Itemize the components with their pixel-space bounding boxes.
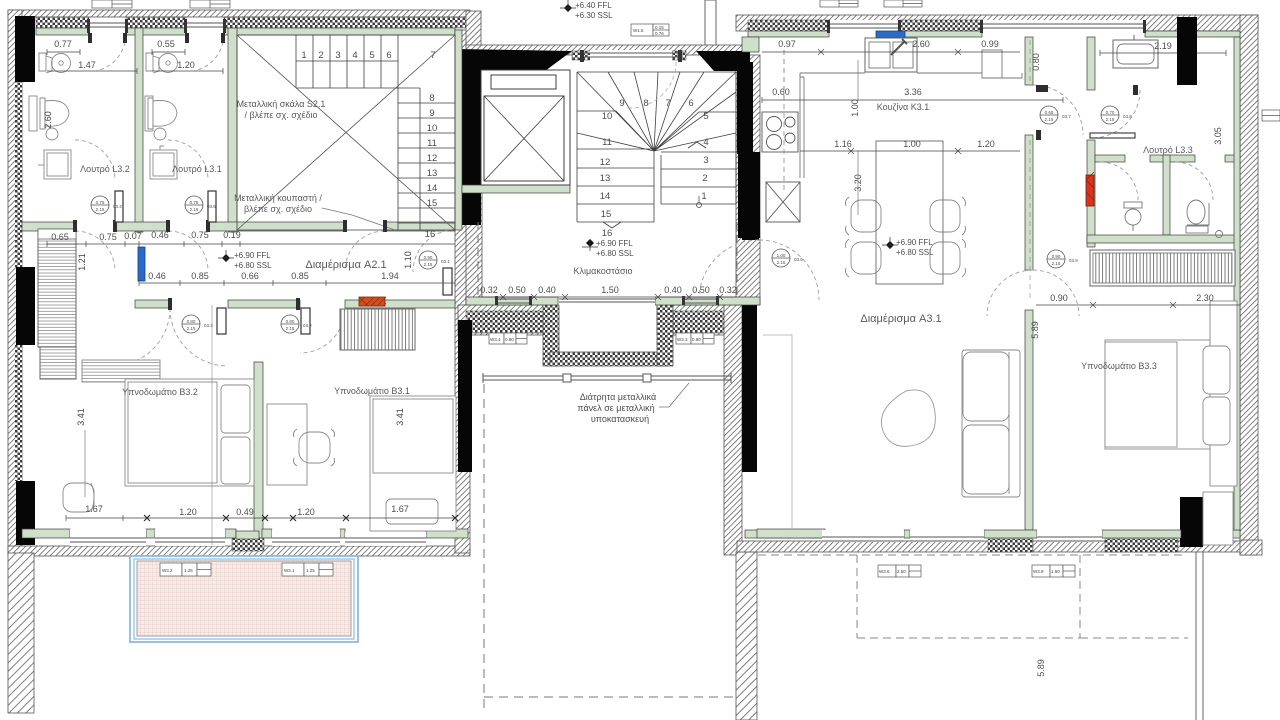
svg-text:Μεταλλική σκάλα S2.1: Μεταλλική σκάλα S2.1 [237, 99, 326, 109]
svg-text:2.15: 2.15 [286, 326, 295, 331]
svg-text:2: 2 [318, 50, 323, 61]
svg-text:Διαμέρισμα A2.1: Διαμέρισμα A2.1 [305, 259, 386, 271]
svg-text:υποκατασκευή: υποκατασκευή [591, 414, 649, 424]
svg-text:2: 2 [702, 173, 707, 184]
svg-text:03.8: 03.8 [1123, 114, 1132, 119]
svg-text:Λουτρό L3.3: Λουτρό L3.3 [1143, 145, 1193, 155]
svg-text:βλέπε σχ. σχέδιο: βλέπε σχ. σχέδιο [244, 204, 312, 214]
svg-text:2.15: 2.15 [96, 207, 105, 212]
svg-text:W3.4: W3.4 [490, 337, 501, 342]
svg-text:Υπνοδωμάτιο B3.3: Υπνοδωμάτιο B3.3 [1081, 361, 1157, 371]
svg-text:0.60: 0.60 [772, 87, 790, 97]
svg-text:0.80: 0.80 [286, 319, 295, 324]
svg-text:16: 16 [602, 228, 613, 239]
svg-text:13: 13 [600, 173, 611, 184]
svg-text:5.89: 5.89 [1036, 659, 1046, 677]
svg-text:+6.90 FFL: +6.90 FFL [596, 239, 633, 248]
svg-text:0.90: 0.90 [505, 337, 514, 342]
svg-text:Μεταλλική κουπαστή /: Μεταλλική κουπαστή / [234, 193, 322, 203]
svg-text:1.50: 1.50 [1051, 569, 1060, 574]
svg-text:0.90: 0.90 [1052, 254, 1061, 259]
svg-text:0.90: 0.90 [424, 255, 433, 260]
svg-text:0.80: 0.80 [187, 319, 196, 324]
svg-text:0.80: 0.80 [1031, 53, 1041, 71]
svg-text:+6.80 SSL: +6.80 SSL [596, 249, 634, 258]
svg-text:1.00: 1.00 [777, 253, 786, 258]
svg-text:1.25: 1.25 [306, 568, 315, 573]
svg-text:2.15: 2.15 [1045, 117, 1054, 122]
svg-text:9: 9 [429, 108, 434, 119]
svg-text:1.20: 1.20 [297, 507, 315, 517]
svg-text:3: 3 [335, 50, 340, 61]
svg-text:4: 4 [703, 137, 708, 148]
svg-text:0.50: 0.50 [692, 285, 710, 295]
svg-text:0.75: 0.75 [191, 230, 209, 240]
svg-text:2.60: 2.60 [912, 39, 930, 49]
svg-text:14: 14 [427, 183, 438, 194]
svg-text:0.75: 0.75 [190, 200, 199, 205]
svg-text:1.47: 1.47 [78, 60, 96, 70]
svg-text:0.46: 0.46 [151, 230, 169, 240]
svg-text:W3.6: W3.6 [879, 569, 890, 574]
svg-text:+6.40 FFL: +6.40 FFL [575, 1, 612, 10]
svg-text:3.36: 3.36 [904, 87, 922, 97]
svg-text:0.75: 0.75 [99, 232, 117, 242]
svg-text:2.15: 2.15 [424, 262, 433, 267]
svg-text:7: 7 [665, 98, 670, 109]
svg-text:1.00: 1.00 [850, 99, 860, 117]
svg-text:11: 11 [427, 138, 437, 149]
svg-text:0.40: 0.40 [538, 285, 556, 295]
svg-text:W3.9: W3.9 [1033, 569, 1044, 574]
svg-text:+6.30 SSL: +6.30 SSL [575, 11, 613, 20]
svg-text:0.90: 0.90 [692, 337, 701, 342]
svg-text:3: 3 [703, 155, 708, 166]
svg-text:W1.5: W1.5 [633, 28, 644, 33]
svg-text:13: 13 [427, 168, 438, 179]
svg-text:1.67: 1.67 [391, 504, 409, 514]
svg-text:1.25: 1.25 [184, 568, 193, 573]
svg-text:0.32: 0.32 [719, 285, 737, 295]
svg-text:2.15: 2.15 [1106, 117, 1115, 122]
svg-text:1.50: 1.50 [601, 285, 619, 295]
svg-text:+6.80 SSL: +6.80 SSL [234, 261, 272, 270]
svg-text:2.15: 2.15 [190, 207, 199, 212]
svg-text:Λουτρό L3.2: Λουτρό L3.2 [80, 164, 130, 174]
svg-text:3.05: 3.05 [1213, 127, 1223, 145]
svg-text:2.15: 2.15 [187, 326, 196, 331]
svg-text:W3.2: W3.2 [162, 568, 173, 573]
svg-text:2.60: 2.60 [43, 111, 53, 129]
svg-text:Διαμέρισμα A3.1: Διαμέρισμα A3.1 [860, 313, 941, 325]
svg-text:10: 10 [602, 111, 613, 122]
svg-text:9: 9 [619, 98, 624, 109]
svg-text:10: 10 [427, 123, 438, 134]
svg-text:Διάτρητα μεταλλικά: Διάτρητα μεταλλικά [580, 392, 656, 402]
svg-text:03.3: 03.3 [204, 323, 213, 328]
svg-text:0.66: 0.66 [241, 271, 259, 281]
svg-text:Κουζίνα K3.1: Κουζίνα K3.1 [877, 102, 930, 112]
svg-text:Λουτρό L3.1: Λουτρό L3.1 [172, 164, 222, 174]
svg-text:2.50: 2.50 [897, 569, 906, 574]
svg-text:2.15: 2.15 [777, 260, 786, 265]
svg-text:5: 5 [703, 111, 708, 122]
svg-text:03.4: 03.4 [113, 204, 122, 209]
svg-text:03.7: 03.7 [1062, 114, 1071, 119]
svg-text:1.00: 1.00 [903, 139, 921, 149]
svg-text:Υπνοδωμάτιο B3.1: Υπνοδωμάτιο B3.1 [334, 386, 410, 396]
svg-text:Κλιμακοστάσιο: Κλιμακοστάσιο [573, 266, 632, 276]
svg-text:0.77: 0.77 [54, 39, 72, 49]
svg-text:0.46: 0.46 [148, 271, 166, 281]
svg-text:3.41: 3.41 [395, 408, 405, 426]
svg-text:+6.90 FFL: +6.90 FFL [896, 238, 933, 247]
svg-text:8: 8 [643, 98, 648, 109]
svg-text:0.49: 0.49 [236, 507, 254, 517]
svg-text:0.65: 0.65 [51, 232, 69, 242]
svg-text:Υπνοδωμάτιο B3.2: Υπνοδωμάτιο B3.2 [122, 387, 198, 397]
svg-text:/ βλέπε σχ. σχέδιο: / βλέπε σχ. σχέδιο [245, 110, 318, 120]
svg-text:7: 7 [430, 50, 435, 61]
svg-text:11: 11 [602, 137, 612, 148]
svg-text:πάνελ σε μεταλλική: πάνελ σε μεταλλική [577, 403, 654, 413]
svg-text:0.85: 0.85 [291, 271, 309, 281]
svg-text:6: 6 [386, 50, 391, 61]
svg-text:0.70: 0.70 [1106, 110, 1115, 115]
svg-text:+6.80 SSL: +6.80 SSL [896, 248, 934, 257]
svg-text:0.15: 0.15 [655, 25, 664, 30]
svg-text:1.16: 1.16 [834, 139, 852, 149]
svg-text:0.90: 0.90 [1050, 293, 1068, 303]
svg-text:0.65: 0.65 [1045, 110, 1054, 115]
svg-text:0.76: 0.76 [655, 31, 664, 36]
svg-text:2.30: 2.30 [1196, 293, 1214, 303]
svg-text:5.89: 5.89 [1030, 321, 1040, 339]
svg-text:1: 1 [701, 191, 706, 202]
svg-text:03.9: 03.9 [1069, 258, 1078, 263]
svg-text:1.20: 1.20 [977, 139, 995, 149]
svg-text:1.10: 1.10 [403, 251, 413, 269]
svg-text:W3.3: W3.3 [677, 337, 688, 342]
svg-text:0.85: 0.85 [191, 271, 209, 281]
svg-text:6: 6 [688, 98, 693, 109]
svg-text:0.07: 0.07 [124, 231, 142, 241]
svg-text:0.97: 0.97 [778, 39, 796, 49]
svg-text:+6.90 FFL: +6.90 FFL [234, 251, 271, 260]
svg-text:1.67: 1.67 [85, 504, 103, 514]
svg-text:2.15: 2.15 [1052, 261, 1061, 266]
svg-text:12: 12 [427, 153, 438, 164]
svg-text:15: 15 [427, 198, 438, 209]
svg-text:14: 14 [600, 191, 611, 202]
svg-text:0.75: 0.75 [96, 200, 105, 205]
svg-text:16: 16 [425, 229, 436, 240]
svg-text:0.55: 0.55 [157, 39, 175, 49]
svg-text:0.40: 0.40 [664, 285, 682, 295]
svg-text:1.94: 1.94 [381, 271, 399, 281]
svg-text:W3.1: W3.1 [284, 568, 295, 573]
svg-text:2.19: 2.19 [1154, 41, 1172, 51]
svg-text:8: 8 [429, 93, 434, 104]
svg-text:3.41: 3.41 [76, 408, 86, 426]
svg-text:15: 15 [601, 209, 612, 220]
svg-text:03.6: 03.6 [794, 257, 803, 262]
svg-text:03.1: 03.1 [441, 259, 450, 264]
svg-text:4: 4 [352, 50, 357, 61]
svg-text:1.20: 1.20 [179, 507, 197, 517]
svg-text:1.21: 1.21 [77, 253, 87, 271]
svg-text:12: 12 [600, 157, 611, 168]
svg-text:03.2: 03.2 [303, 323, 312, 328]
svg-text:0.50: 0.50 [508, 285, 526, 295]
svg-text:5: 5 [369, 50, 374, 61]
svg-text:0.99: 0.99 [981, 39, 999, 49]
svg-text:0.19: 0.19 [223, 230, 241, 240]
svg-text:1: 1 [301, 50, 306, 61]
svg-text:0.32: 0.32 [480, 285, 498, 295]
svg-text:03.5: 03.5 [207, 204, 216, 209]
svg-text:1.20: 1.20 [177, 60, 195, 70]
